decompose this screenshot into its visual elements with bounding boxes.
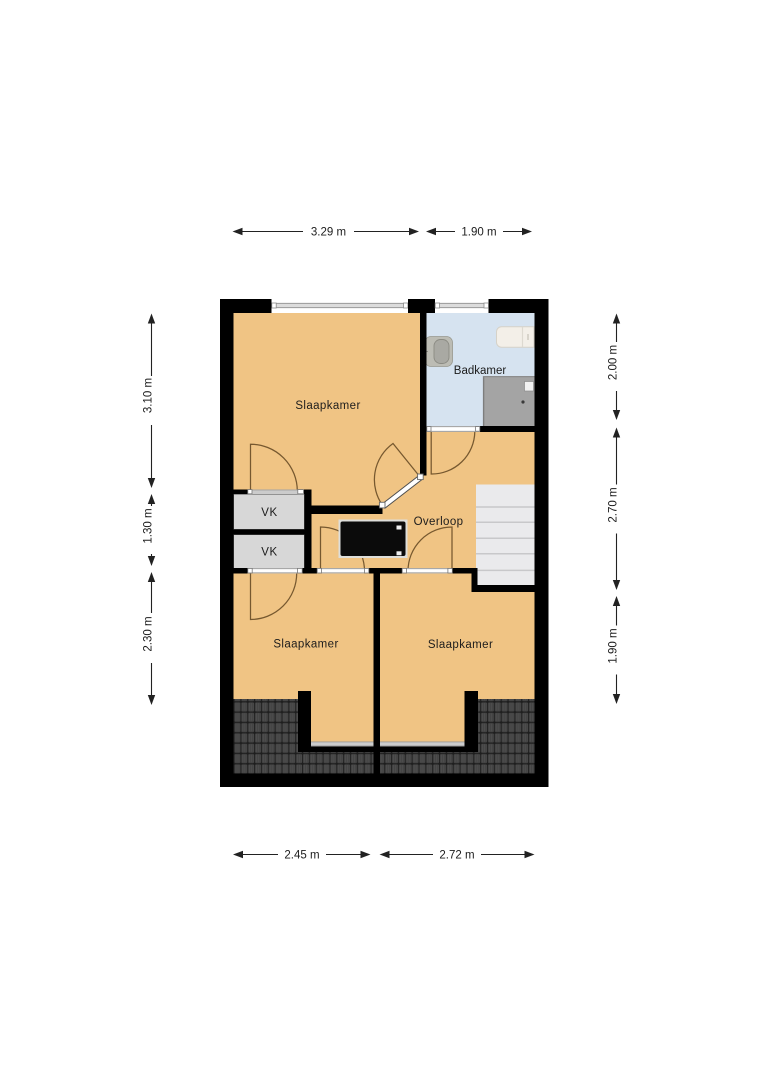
svg-text:3.29 m: 3.29 m bbox=[311, 227, 346, 239]
svg-text:2.30 m: 2.30 m bbox=[143, 616, 155, 651]
svg-text:2.45 m: 2.45 m bbox=[284, 850, 319, 862]
svg-text:VK: VK bbox=[261, 547, 278, 559]
svg-text:Slaapkamer: Slaapkamer bbox=[273, 639, 338, 651]
svg-text:1.90 m: 1.90 m bbox=[608, 628, 620, 663]
svg-text:2.00 m: 2.00 m bbox=[608, 345, 620, 380]
svg-text:Slaapkamer: Slaapkamer bbox=[295, 400, 360, 412]
svg-text:VK: VK bbox=[261, 507, 278, 519]
svg-text:Overloop: Overloop bbox=[414, 516, 464, 528]
svg-text:Badkamer: Badkamer bbox=[454, 365, 507, 377]
svg-text:1.90 m: 1.90 m bbox=[461, 227, 496, 239]
svg-text:2.70 m: 2.70 m bbox=[608, 487, 620, 522]
svg-text:1.30 m: 1.30 m bbox=[143, 508, 155, 543]
svg-text:3.10 m: 3.10 m bbox=[143, 378, 155, 413]
svg-text:2.72 m: 2.72 m bbox=[439, 850, 474, 862]
svg-text:Slaapkamer: Slaapkamer bbox=[428, 639, 493, 651]
